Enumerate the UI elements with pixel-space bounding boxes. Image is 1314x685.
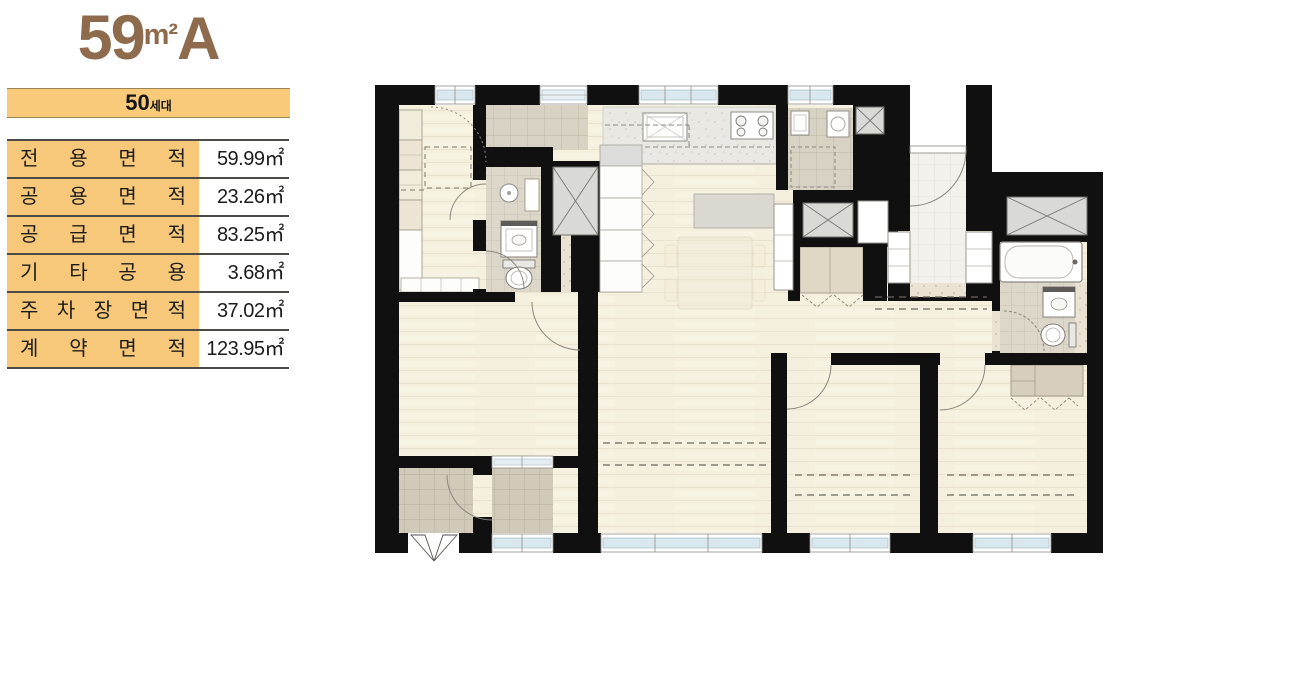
exterior-above-wing xyxy=(992,105,1087,172)
table-row: 공 용 면 적 23.26㎡ xyxy=(7,179,289,217)
area-value: 3.68㎡ xyxy=(199,255,289,291)
area-label: 전 용 면 적 xyxy=(7,141,199,177)
window xyxy=(810,534,890,552)
bath1-vanity xyxy=(501,221,537,257)
bath2-sink xyxy=(1043,287,1075,317)
bedroom1-closet xyxy=(399,110,422,290)
floor-plan-drawing xyxy=(375,85,1105,567)
hall-cabinet xyxy=(858,201,888,243)
window xyxy=(601,534,762,552)
entry-threshold xyxy=(910,283,966,297)
toilet-icon xyxy=(1041,323,1076,347)
room-dressing-floor xyxy=(486,105,588,150)
washer-icon xyxy=(827,111,849,137)
area-value: 59.99㎡ xyxy=(199,141,289,177)
table-row: 기 타 공 용 3.68㎡ xyxy=(7,255,289,293)
unit-size: 59 xyxy=(78,3,144,73)
window xyxy=(639,86,718,104)
bedroom3-wardrobe xyxy=(1011,365,1083,396)
page-title: 59m²A xyxy=(7,2,290,74)
room-porch-floor xyxy=(399,468,473,533)
shaft-icon xyxy=(553,167,598,235)
households-badge: 50세대 xyxy=(7,88,290,118)
households-count: 50 xyxy=(125,90,149,115)
shaft-icon xyxy=(803,203,853,237)
area-value: 123.95㎡ xyxy=(199,331,289,367)
kitchen-island xyxy=(694,194,774,228)
utility-sink xyxy=(791,111,809,135)
bath2-door-threshold xyxy=(992,311,1000,351)
stove-icon xyxy=(731,112,773,139)
window xyxy=(540,86,587,104)
area-value: 37.02㎡ xyxy=(199,293,289,329)
window xyxy=(973,534,1051,552)
floor-plan xyxy=(375,85,1105,567)
area-value: 23.26㎡ xyxy=(199,179,289,215)
bedroom1-bench xyxy=(401,278,479,292)
shaft-icon xyxy=(1007,197,1087,235)
window xyxy=(435,86,475,104)
bathtub-icon xyxy=(1000,242,1082,282)
window xyxy=(492,456,553,468)
window xyxy=(492,534,553,552)
households-suffix: 세대 xyxy=(150,99,172,113)
table-row: 주 차 장 면 적 37.02㎡ xyxy=(7,293,289,331)
room-shoe-floor xyxy=(492,468,553,533)
refrigerator xyxy=(774,204,793,290)
entry-door-leaf xyxy=(910,146,966,153)
kitchen-sink xyxy=(643,113,687,141)
window xyxy=(788,86,833,104)
area-label: 공 용 면 적 xyxy=(7,179,199,215)
table-row: 계 약 면 적 123.95㎡ xyxy=(7,331,289,369)
shaft-icon xyxy=(856,107,884,134)
room-entry-floor xyxy=(910,150,966,283)
area-value: 83.25㎡ xyxy=(199,217,289,253)
area-label: 공 급 면 적 xyxy=(7,217,199,253)
bath2-marble-strip xyxy=(1075,282,1087,353)
unit-size-unit: m² xyxy=(144,19,177,51)
unit-type: A xyxy=(177,5,219,72)
area-label: 주 차 장 면 적 xyxy=(7,293,199,329)
area-label: 기 타 공 용 xyxy=(7,255,199,291)
area-table: 전 용 면 적 59.99㎡ 공 용 면 적 23.26㎡ 공 급 면 적 83… xyxy=(7,139,289,369)
front-door-icon xyxy=(411,535,457,561)
exterior-above-entry xyxy=(910,105,966,150)
table-row: 공 급 면 적 83.25㎡ xyxy=(7,217,289,255)
area-label: 계 약 면 적 xyxy=(7,331,199,367)
table-row: 전 용 면 적 59.99㎡ xyxy=(7,141,289,179)
pantry-closet xyxy=(800,247,863,293)
dining-table xyxy=(665,237,765,309)
